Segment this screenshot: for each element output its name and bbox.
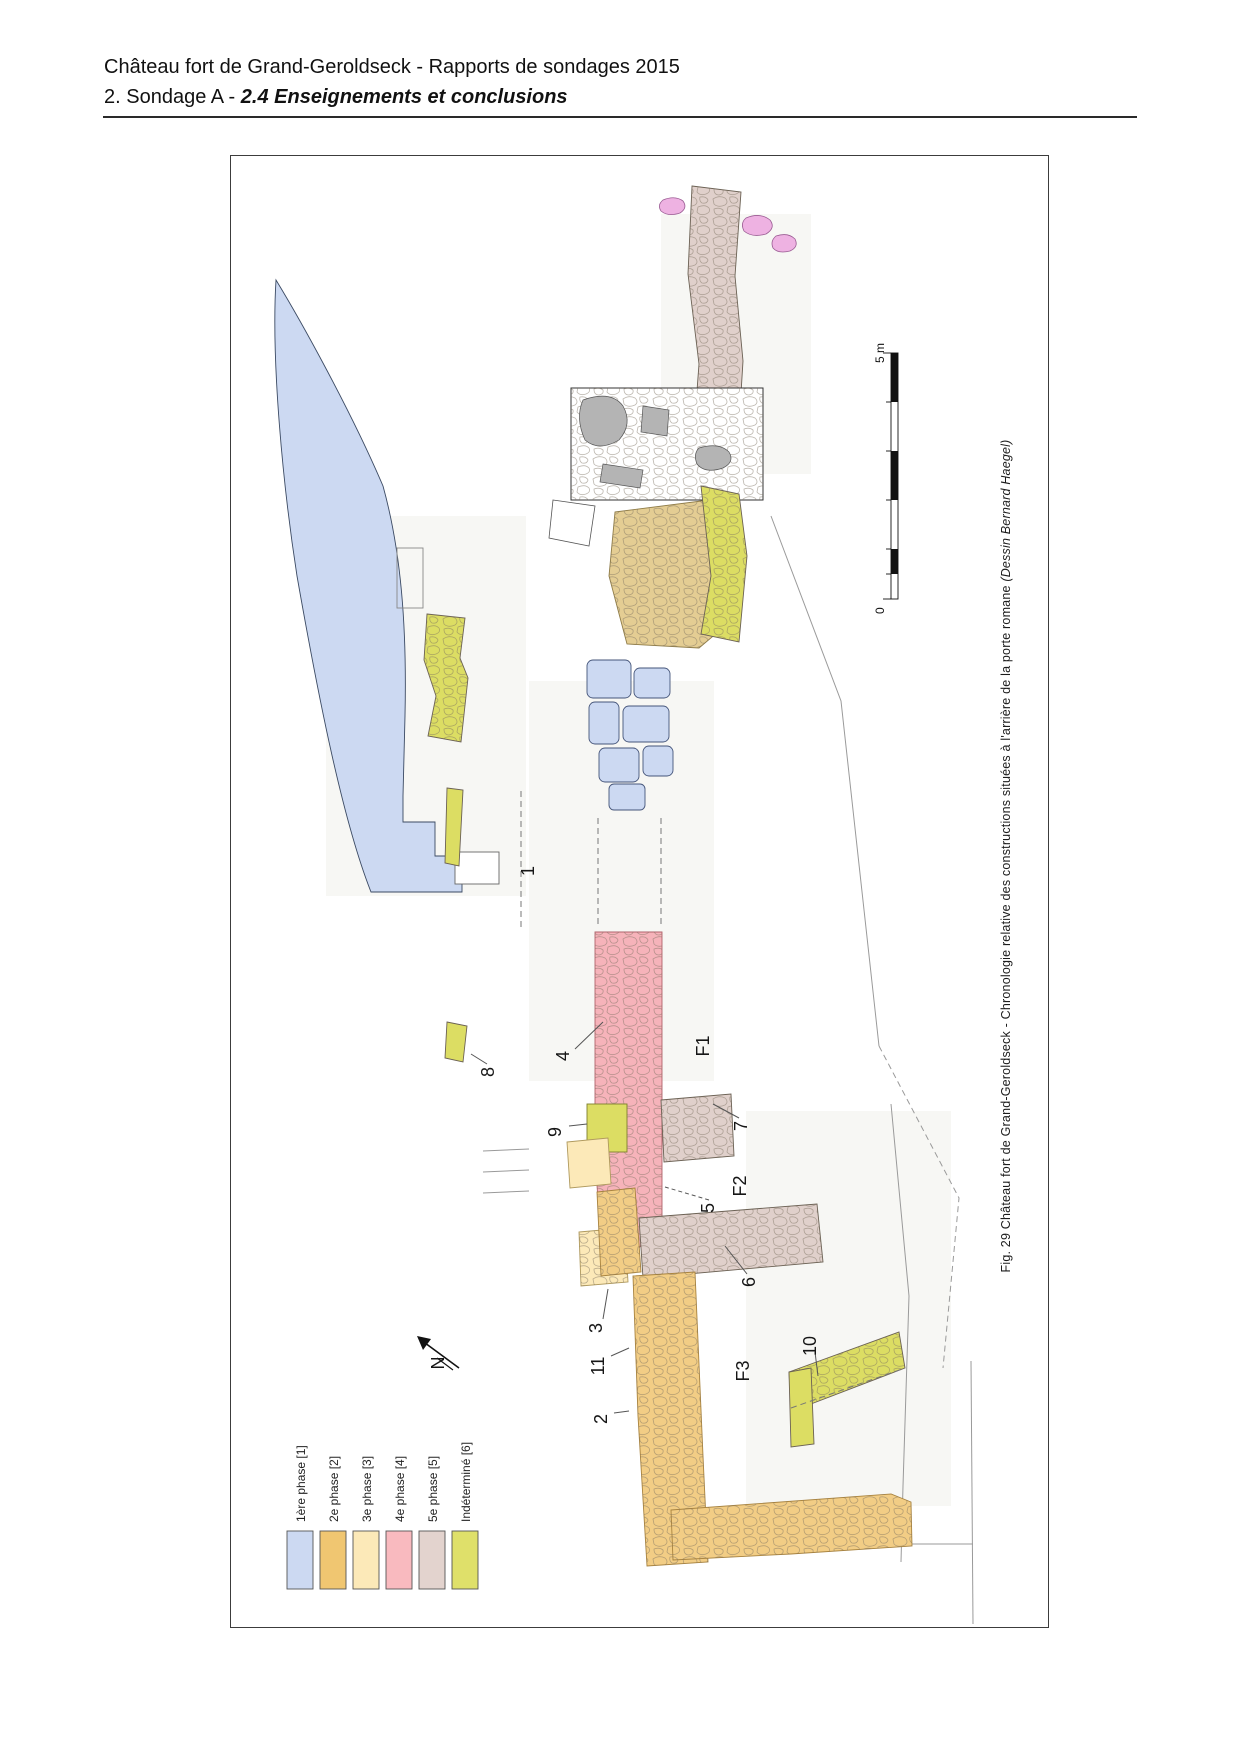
legend-label-1: 1ère phase [1] [294, 1445, 308, 1522]
figure-caption: Fig. 29 Château fort de Grand-Geroldseck… [999, 396, 1017, 1316]
legend-label-2: 2e phase [2] [327, 1456, 341, 1522]
wall-stub-outline [455, 852, 499, 884]
plan-label-11: 11 [588, 1357, 608, 1376]
plan-label-6: 6 [739, 1277, 759, 1287]
legend-label-4: 4e phase [4] [393, 1456, 407, 1522]
section-prefix: 2. Sondage A - [104, 86, 241, 108]
header-rule [103, 116, 1137, 118]
plan-label-2: 2 [591, 1414, 611, 1424]
site-plan-drawing: 1 8 4 9 F1 7 F2 5 6 3 11 2 F3 10 N [231, 156, 1048, 1627]
plan-label-7: 7 [731, 1121, 751, 1131]
plan-label-10: 10 [800, 1336, 820, 1356]
plan-label-f2: F2 [730, 1175, 750, 1196]
page-header: Château fort de Grand-Geroldseck - Rappo… [104, 52, 680, 112]
plan-label-8: 8 [478, 1067, 498, 1077]
wall-phase5-seven [661, 1094, 734, 1162]
plan-label-5: 5 [698, 1203, 718, 1213]
legend-label-3: 3e phase [3] [360, 1456, 374, 1522]
plan-label-1: 1 [518, 866, 538, 876]
legend-label-5: 5e phase [5] [426, 1456, 440, 1522]
legend-swatch-6 [452, 1531, 478, 1589]
figure-caption-text: Fig. 29 Château fort de Grand-Geroldseck… [999, 582, 1013, 1273]
legend-swatch-3 [353, 1531, 379, 1589]
scale-label-0: 0 [873, 607, 887, 614]
plan-label-3: 3 [586, 1323, 606, 1333]
section-emphasis: 2.4 Enseignements et conclusions [241, 86, 568, 108]
scale-bar: 5 m 0 [873, 343, 898, 614]
plan-label-f1: F1 [693, 1035, 713, 1056]
legend-label-6: Indéterminé [6] [459, 1442, 473, 1522]
legend-swatch-4 [386, 1531, 412, 1589]
scale-label-5m: 5 m [873, 343, 887, 363]
north-label: N [428, 1357, 448, 1370]
plan-label-9: 9 [545, 1127, 565, 1137]
legend-swatch-1 [287, 1531, 313, 1589]
legend-swatch-5 [419, 1531, 445, 1589]
north-arrow: N [417, 1336, 459, 1370]
legend: 1ère phase [1] 2e phase [2] 3e phase [3]… [287, 1442, 478, 1589]
legend-swatch-2 [320, 1531, 346, 1589]
plan-label-f3: F3 [733, 1360, 753, 1381]
report-page: { "page": { "title_line": "Château fort … [0, 0, 1241, 1755]
section-heading: 2. Sondage A - 2.4 Enseignements et conc… [104, 82, 680, 112]
plan-label-4: 4 [553, 1051, 573, 1061]
figure-caption-credit: (Dessin Bernard Haegel) [999, 440, 1013, 582]
report-title: Château fort de Grand-Geroldseck - Rappo… [104, 52, 680, 82]
figure-29-frame: 1 8 4 9 F1 7 F2 5 6 3 11 2 F3 10 N [230, 155, 1049, 1628]
